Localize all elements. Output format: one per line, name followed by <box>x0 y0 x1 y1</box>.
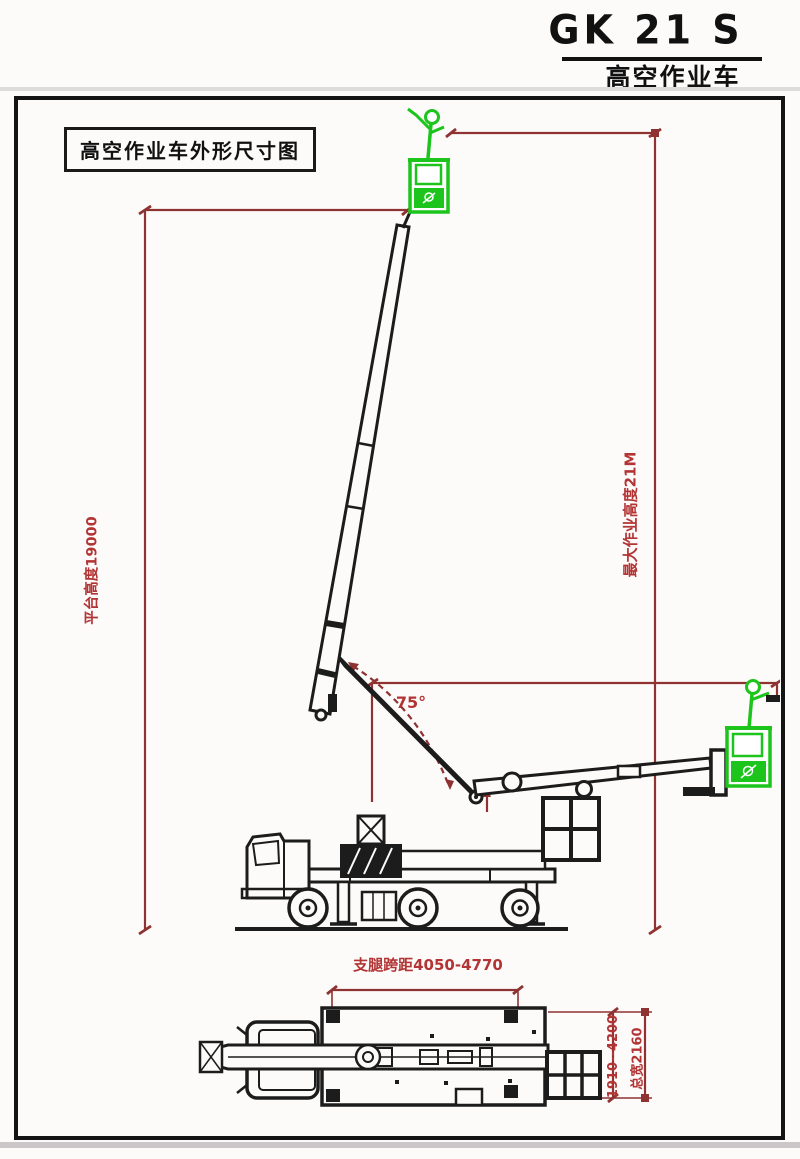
vehicle-type-title: 高空作业车 <box>592 58 754 86</box>
truck-plan-view <box>200 1008 600 1105</box>
wheels <box>289 889 538 927</box>
lower-boom-arm <box>336 654 480 802</box>
max-working-height-label: 最大作业高度21M <box>613 428 647 600</box>
side-view-drawing <box>20 100 780 945</box>
platform-height-label: 平台高度19000 <box>74 498 108 643</box>
worker-raised-icon <box>408 109 444 158</box>
scan-streak-top <box>0 87 800 91</box>
boom-horizontal-position <box>474 750 726 797</box>
scanned-technical-drawing: { "header": { "model": "GK 21 S", "subti… <box>0 0 800 1159</box>
boom-rest-plan <box>200 1042 222 1072</box>
worker-horizontal-icon <box>747 681 781 729</box>
dimension-lines-red <box>139 129 780 934</box>
step-box <box>362 892 396 920</box>
overall-width-label: 总宽2160 <box>623 1001 649 1115</box>
turntable-plan <box>356 1045 380 1069</box>
turntable-pedestal <box>340 816 402 878</box>
telescopic-boom-raised <box>310 212 410 720</box>
truck-side-view <box>235 212 726 929</box>
outrigger-span-label: 支腿跨距4050-4770 <box>328 954 528 978</box>
stowed-basket-grid <box>543 798 599 860</box>
model-designation: GK 21 S <box>540 7 752 57</box>
body-box <box>400 851 545 869</box>
work-platforms-green <box>408 109 780 786</box>
basket-raised <box>408 160 450 212</box>
boom-angle-label: 75° <box>386 693 436 715</box>
basket-plan-grid <box>547 1052 600 1098</box>
basket-horizontal <box>725 728 772 786</box>
